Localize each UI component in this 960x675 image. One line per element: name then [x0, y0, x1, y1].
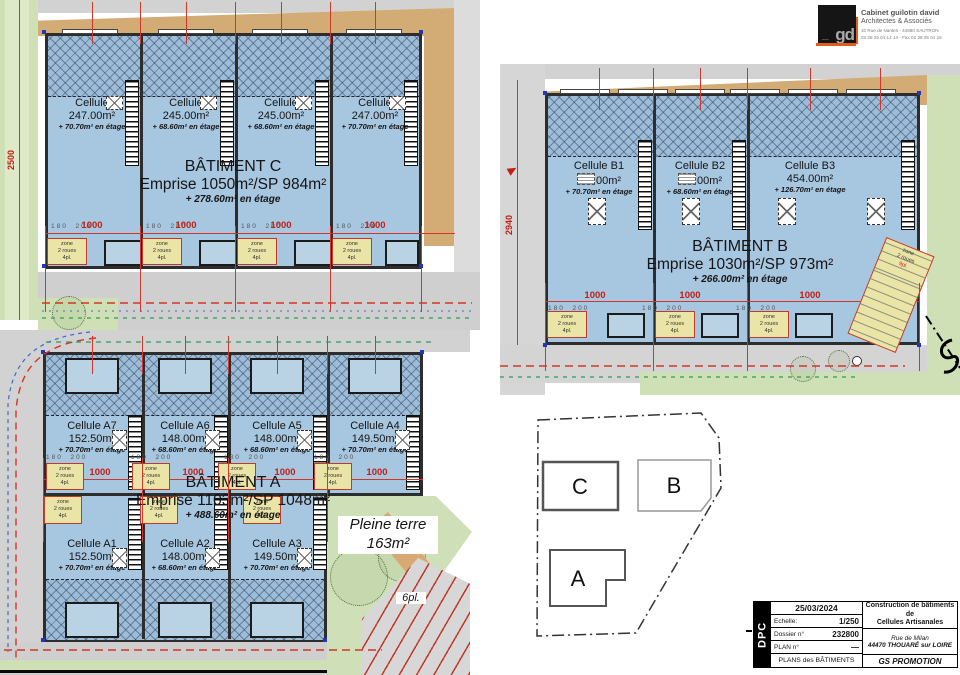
building-title: BÂTIMENT A Emprise 1103m²/SP 1048m² + 48…: [83, 474, 383, 521]
tree: [790, 356, 816, 382]
logo-address: 10 Rue de Nantes - 44880 SAUTRON: [861, 28, 958, 33]
logo-orange-underline: [816, 43, 856, 46]
stair-icon: [901, 140, 915, 230]
title-block-tick: [746, 630, 752, 632]
zone-cover-icon: [577, 173, 595, 185]
dim-2940: 2940: [504, 215, 514, 235]
plan-batiment-b: 2940 Cellule B1 00m² + 70.70m² en étage …: [490, 50, 960, 395]
zone-2roues-box: zone2 roues4pl.: [332, 238, 372, 265]
scale-value: 1/250: [839, 617, 859, 626]
zone-cover-icon: [678, 173, 696, 185]
manhole-icon: [852, 356, 862, 366]
logo-firm-name: Cabinet guilotin david: [861, 8, 958, 17]
lift-icon: [295, 96, 312, 110]
lift-icon: [682, 198, 700, 225]
window: [62, 29, 118, 34]
zone-2roues-box: zone2 roues4pl.: [547, 311, 587, 338]
garage-door: [65, 602, 119, 638]
lift-icon: [395, 430, 410, 450]
garage-door: [607, 313, 645, 338]
green-strip-bottom: [640, 372, 927, 395]
red-dim-line: [19, 0, 20, 320]
road-left: [0, 330, 45, 662]
road-top: [0, 330, 470, 352]
pleine-terre-label: Pleine terre 163m²: [338, 516, 438, 554]
garage-door: [158, 602, 212, 638]
cell-label: Cellule 247.00m² + 70.70m² en étage: [310, 97, 440, 132]
building-title: BÂTIMENT C Emprise 1050m²/SP 984m² + 278…: [83, 158, 383, 205]
zone-2roues-box: zone2 roues4pl.: [237, 238, 277, 265]
lift-icon: [867, 198, 885, 225]
lift-icon: [112, 430, 127, 450]
window: [252, 29, 308, 34]
tree: [828, 350, 850, 372]
cell-label: Cellule A4149.50m²+ 70.70m² en étage: [310, 420, 440, 455]
plan-number-label: PLAN n°: [774, 644, 799, 651]
dim-1000: 1000: [70, 220, 114, 231]
lift-icon: [778, 198, 796, 225]
sheet-title: PLANS des BÂTIMENTS: [771, 654, 862, 667]
key-plan: C B A: [533, 403, 733, 658]
logo-phone: 02 28 25 01 14 14 - Fax 02 28 25 01 15: [861, 35, 958, 40]
lift-icon: [200, 96, 217, 110]
lift-icon: [389, 96, 406, 110]
dpc-strip: DPC: [754, 602, 771, 667]
tree: [52, 296, 86, 330]
keyplan-label-c: C: [572, 474, 588, 499]
lift-icon: [205, 430, 220, 450]
garage-door: [104, 240, 142, 266]
title-date: 25/03/2024: [771, 602, 862, 615]
project-title: Construction de bâtiments de Cellules Ar…: [863, 602, 957, 629]
title-block: DPC 25/03/2024 Echelle: 1/250 Dossier n°…: [753, 601, 958, 668]
project-address: Rue de Milan 44470 THOUARÉ sur LOIRE: [863, 629, 957, 655]
lift-icon: [588, 198, 606, 225]
parking-count-label: 6pl.: [396, 592, 426, 604]
garage-door: [294, 240, 332, 266]
lift-icon: [205, 548, 220, 568]
zone-2roues-box: zone2 roues4pl.: [44, 496, 82, 524]
garage-door: [250, 602, 304, 638]
window: [346, 29, 402, 34]
lift-icon: [297, 548, 312, 568]
zone-2roues-box: zone2 roues4pl.: [655, 311, 695, 338]
cell-label: Cellule A3149.50m²+ 70.70m² en étage: [212, 538, 342, 573]
lift-icon: [106, 96, 123, 110]
zone-2roues-box: zone2 roues4pl.: [47, 238, 87, 265]
garage-door: [199, 240, 237, 266]
plan-number-value: —: [851, 643, 859, 652]
keyplan-building-a: [550, 550, 625, 606]
garage-door: [701, 313, 739, 338]
logo-monogram-square: _ gd: [818, 5, 856, 43]
dossier-label: Dossier n°: [774, 631, 804, 638]
garage-door: [385, 240, 419, 266]
logo-firm-subtitle: Architectes & Associés: [861, 18, 958, 25]
keyplan-label-b: B: [667, 473, 682, 498]
plan-batiment-c: 2500 Cellule 247.00m² + 70.70m² en étage…: [0, 0, 480, 330]
drawing-sheet: 2500 Cellule 247.00m² + 70.70m² en étage…: [0, 0, 960, 675]
client-name: GS PROMOTION: [863, 655, 957, 667]
dim-2500: 2500: [6, 150, 16, 170]
keyplan-label-a: A: [571, 566, 586, 591]
red-dim-line: [45, 233, 455, 234]
cell-label: Cellule B3 454.00m² + 126.70m² en étage: [745, 160, 875, 195]
plan-batiment-a: 6pl. Pleine terre 163m² Cellule A7152.50…: [0, 330, 480, 675]
garage-door: [795, 313, 833, 338]
zone-2roues-box: zone2 roues4pl.: [749, 311, 789, 338]
scale-label: Echelle:: [774, 618, 797, 625]
building-title: BÂTIMENT B Emprise 1030m²/SP 973m² + 266…: [585, 238, 895, 285]
zone-2roues-box: zone2 roues4pl.: [46, 463, 84, 490]
lift-icon: [297, 430, 312, 450]
lift-icon: [112, 548, 127, 568]
zone-2roues-box: zone2 roues4pl.: [142, 238, 182, 265]
green-strip: [927, 75, 960, 395]
dossier-value: 232800: [832, 630, 859, 639]
sidewalk-right: [424, 34, 456, 246]
logo-monogram: gd: [835, 25, 854, 45]
